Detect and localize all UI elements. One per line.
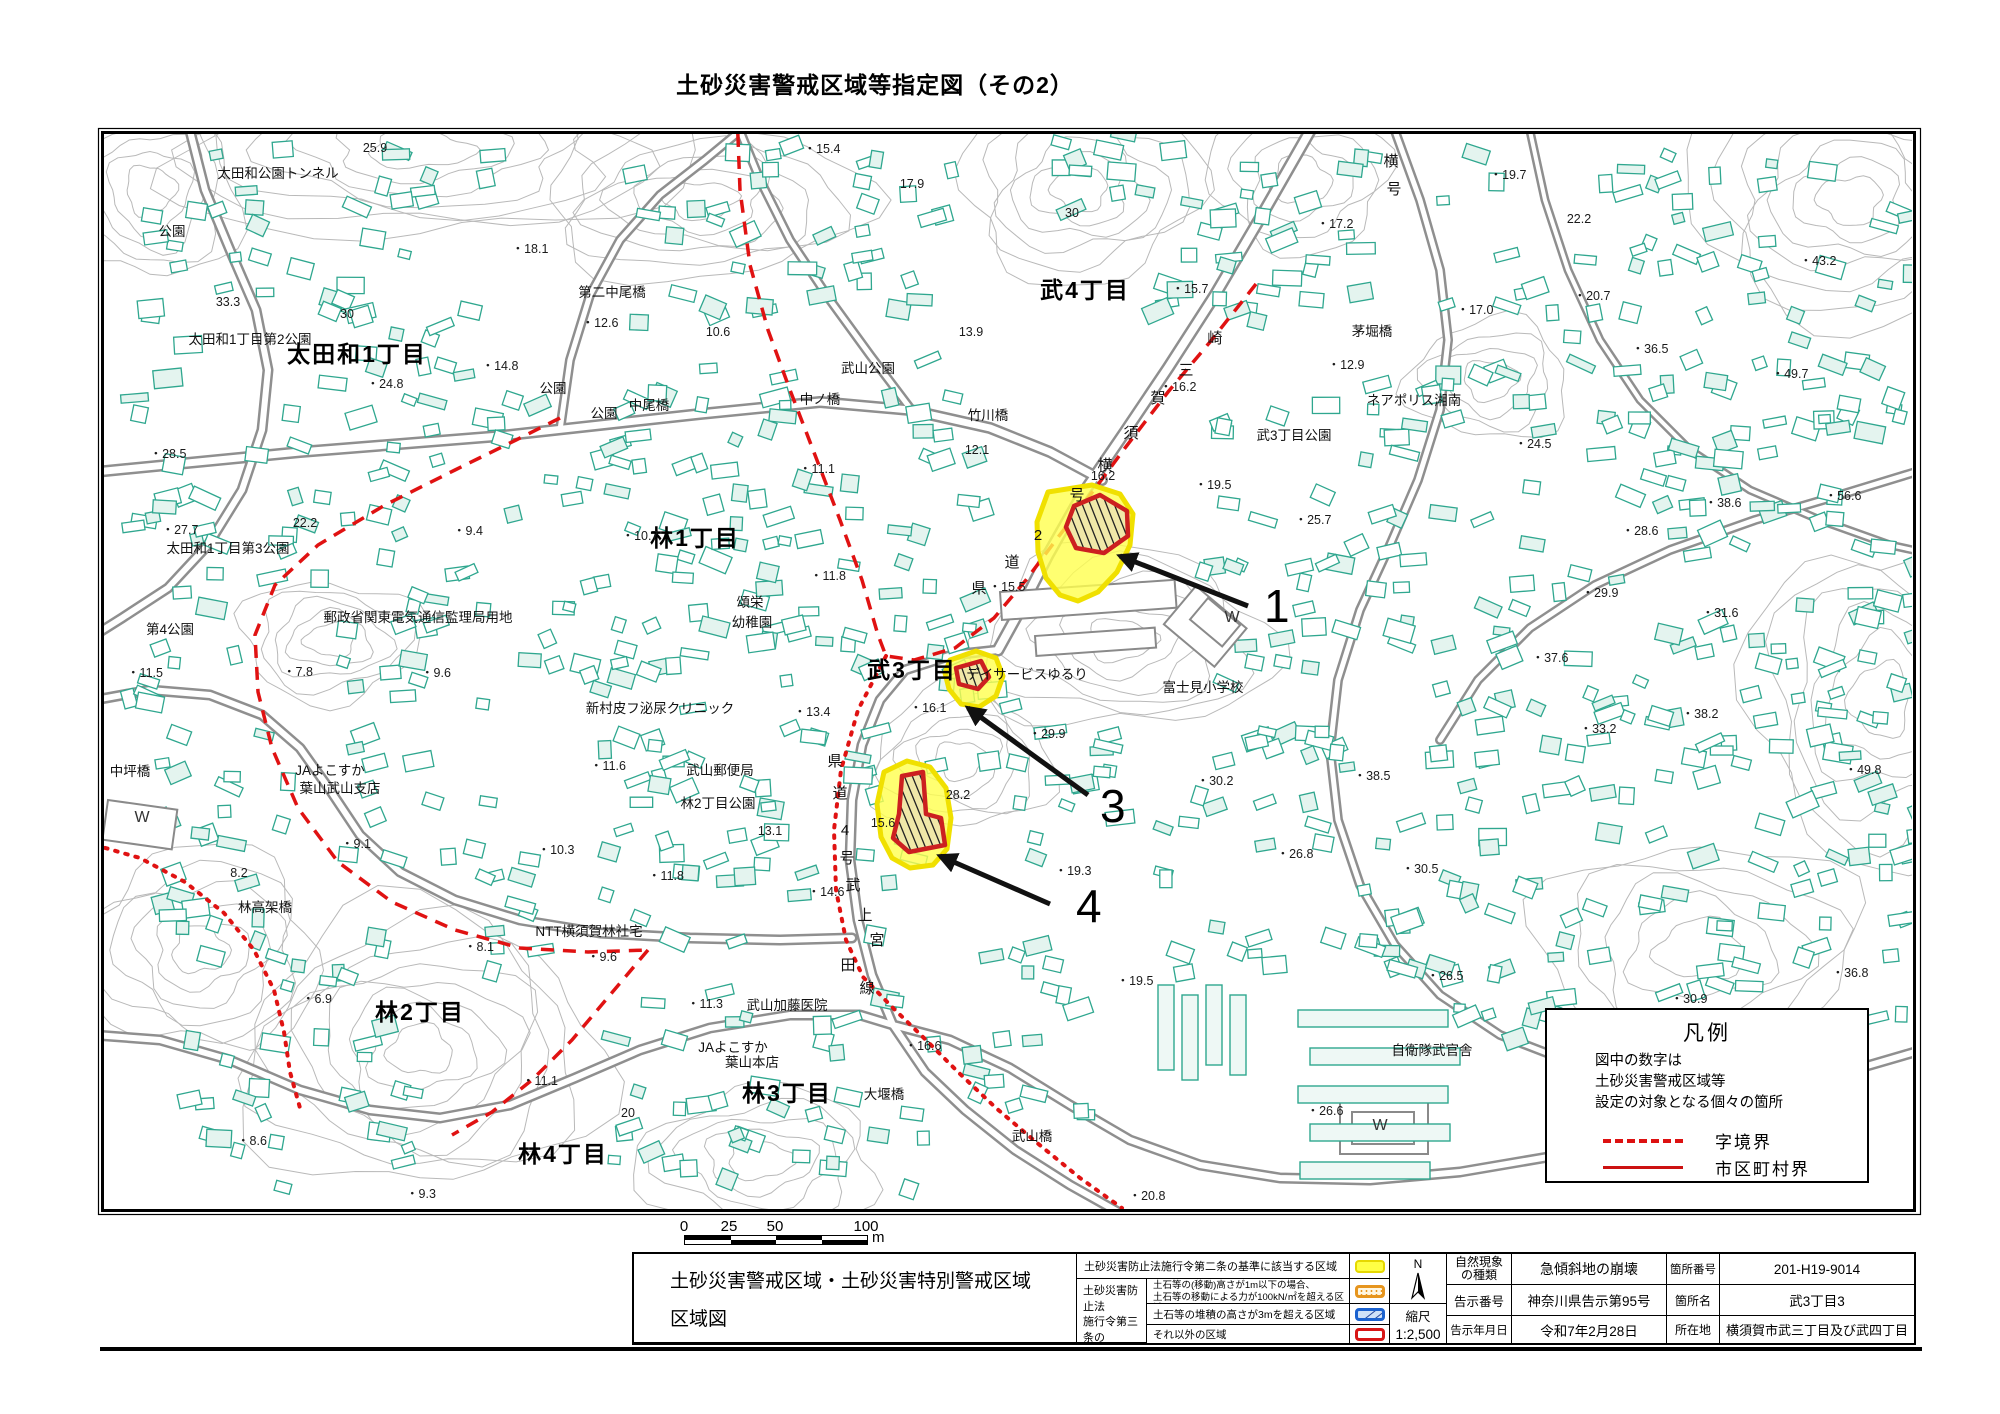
elevation-label: ・15.5 xyxy=(989,580,1026,594)
building xyxy=(245,200,264,215)
elevation-label: ・19.5 xyxy=(1195,478,1232,492)
building xyxy=(1556,932,1574,950)
building xyxy=(608,1155,620,1164)
elevation-label: ・17.0 xyxy=(1457,303,1494,317)
elevation-label: 30 xyxy=(1065,206,1079,220)
building xyxy=(170,260,188,273)
building xyxy=(1564,651,1592,666)
yellow-zone-swatch-icon xyxy=(1355,1260,1385,1273)
field-value-notice-date: 令和7年2月28日 xyxy=(1512,1316,1667,1343)
building xyxy=(561,491,583,506)
map-label: 4 xyxy=(841,822,849,839)
building xyxy=(1347,282,1373,302)
building xyxy=(155,758,170,769)
elevation-label: ・31.6 xyxy=(1702,606,1739,620)
building xyxy=(829,1044,845,1061)
building xyxy=(1609,574,1625,585)
building xyxy=(648,739,663,752)
building xyxy=(1837,395,1861,413)
elevation-label: ・7.8 xyxy=(283,665,313,679)
building xyxy=(191,827,210,840)
building xyxy=(1315,726,1329,737)
legend-row2-swatch-cell xyxy=(1350,1279,1390,1304)
field-value-location: 横須賀市武三丁目及び武四丁目 xyxy=(1720,1316,1914,1343)
map-label: JAよこすか xyxy=(698,1040,768,1055)
map-label: 横 xyxy=(1383,153,1398,170)
elevation-label: ・36.5 xyxy=(1632,342,1669,356)
building xyxy=(1437,815,1453,830)
building xyxy=(563,601,576,612)
map-label: 頌栄 xyxy=(737,595,765,610)
teal-structure xyxy=(1158,985,1174,1070)
building xyxy=(993,1031,1011,1048)
building xyxy=(881,875,897,891)
map-label: 2 xyxy=(1034,527,1042,544)
building xyxy=(440,848,456,865)
legend-item-label: 字境界 xyxy=(1715,1128,1772,1153)
building xyxy=(1384,429,1409,446)
map-label: 県 xyxy=(827,753,842,770)
elevation-label: 20 xyxy=(621,1106,635,1120)
map-label: NTT横須賀林社宅 xyxy=(535,924,642,939)
building xyxy=(1757,177,1777,193)
building xyxy=(1552,583,1566,602)
building xyxy=(1565,744,1585,762)
elevation-label: 22.2 xyxy=(1567,212,1591,226)
building xyxy=(1022,1034,1042,1046)
building xyxy=(357,1052,372,1061)
elevation-label: 17.9 xyxy=(900,177,924,191)
elevation-label: ・9.4 xyxy=(453,524,483,538)
map-label: 太田和公園トンネル xyxy=(217,166,338,181)
building xyxy=(1312,397,1339,413)
map-label: 道 xyxy=(832,785,847,802)
legend-item-label: 市区町村界 xyxy=(1715,1155,1810,1180)
building xyxy=(754,857,770,870)
map-label: 自衛隊武官舎 xyxy=(1392,1043,1473,1058)
building xyxy=(1629,412,1651,424)
building xyxy=(1357,884,1371,896)
building xyxy=(978,751,1001,771)
building xyxy=(184,1031,201,1051)
elevation-label: ・56.6 xyxy=(1825,489,1862,503)
building xyxy=(518,653,541,668)
elevation-label: ・10.3 xyxy=(538,843,575,857)
building xyxy=(1714,449,1744,469)
building xyxy=(957,494,980,507)
elevation-label: ・38.5 xyxy=(1354,769,1391,783)
building xyxy=(1510,575,1535,592)
building xyxy=(1160,141,1187,161)
north-label: N xyxy=(1414,1257,1423,1271)
building xyxy=(699,363,717,374)
building xyxy=(1339,762,1355,772)
elevation-label: ・25.7 xyxy=(1295,513,1332,527)
building xyxy=(1247,312,1267,330)
elevation-label: ・6.9 xyxy=(302,992,332,1006)
map-label: 林2丁目公園 xyxy=(680,796,755,811)
building xyxy=(913,424,933,438)
building xyxy=(1848,587,1873,599)
field-label-phenomenon: 自然現象 の種類 xyxy=(1447,1254,1512,1285)
building xyxy=(1069,165,1092,176)
elevation-label: ・11.1 xyxy=(522,1074,558,1088)
building xyxy=(1839,751,1861,760)
elevation-label: ・30.2 xyxy=(1197,774,1234,788)
building xyxy=(1245,654,1264,671)
map-label: 葉山本店 xyxy=(725,1055,779,1070)
building xyxy=(1720,625,1737,642)
map-label: 号 xyxy=(839,850,854,867)
building xyxy=(780,674,793,687)
building xyxy=(1769,739,1793,753)
building xyxy=(282,405,300,423)
building xyxy=(1299,792,1317,812)
building xyxy=(1892,409,1907,424)
building xyxy=(695,397,709,413)
building xyxy=(1672,194,1693,210)
zone-number-label-3: 3 xyxy=(1100,780,1126,832)
building xyxy=(1338,230,1354,240)
building xyxy=(1366,581,1387,598)
building xyxy=(711,462,739,479)
building xyxy=(632,459,647,474)
building xyxy=(479,796,497,808)
elevation-label: ・14.8 xyxy=(482,359,519,373)
building xyxy=(1546,305,1559,321)
building xyxy=(176,921,189,934)
field-value-phenomenon: 急傾斜地の崩壊 xyxy=(1512,1254,1667,1285)
teal-structure xyxy=(1298,1010,1448,1027)
building xyxy=(480,149,506,163)
building xyxy=(680,1160,697,1177)
building xyxy=(1254,208,1270,225)
elevation-label: ・38.6 xyxy=(1705,496,1742,510)
map-label: 幼稚園 xyxy=(732,615,773,630)
map-label: 三 xyxy=(1178,362,1193,379)
building xyxy=(291,959,306,973)
building xyxy=(1208,920,1225,934)
building xyxy=(387,442,401,453)
map-label: 公園 xyxy=(540,381,567,396)
building xyxy=(311,570,329,587)
building xyxy=(390,192,413,209)
elevation-label: ・12.6 xyxy=(582,316,619,330)
field-label-notice-no: 告示番号 xyxy=(1447,1285,1512,1316)
building xyxy=(1513,395,1529,409)
building xyxy=(1255,838,1276,852)
building xyxy=(846,507,863,520)
elevation-label: ・8.1 xyxy=(464,940,494,954)
building xyxy=(793,1150,811,1163)
building xyxy=(1110,185,1126,201)
district-label: 林1丁目 xyxy=(650,525,740,551)
building xyxy=(1586,304,1603,322)
elevation-label: ・9.6 xyxy=(421,666,451,680)
building xyxy=(1235,639,1257,652)
building xyxy=(672,572,693,583)
building xyxy=(765,149,781,161)
elevation-label: ・11.8 xyxy=(810,569,846,583)
teal-structure xyxy=(1230,995,1246,1075)
building xyxy=(1540,735,1562,755)
building xyxy=(1766,159,1778,169)
elevation-label: ・29.9 xyxy=(1582,586,1619,600)
legend-group-label: 土砂災害防止法 施行令第三条の 基準に該当する 区域 xyxy=(1077,1279,1147,1343)
elevation-label: ・9.1 xyxy=(341,837,371,851)
elevation-label: ・24.5 xyxy=(1515,437,1552,451)
building xyxy=(1523,480,1541,495)
building xyxy=(1883,949,1899,963)
scale-unit: m xyxy=(872,1229,885,1246)
building xyxy=(1437,196,1450,205)
elevation-label: ・10.7 xyxy=(622,529,659,543)
building xyxy=(1022,966,1034,979)
building xyxy=(962,1045,982,1064)
building xyxy=(1758,903,1785,921)
building xyxy=(1027,831,1043,846)
building xyxy=(1879,864,1892,880)
building xyxy=(1248,949,1263,959)
info-table: 土砂災害警戒区域・土砂災害特別警戒区域 区域図 土砂災害防止法施行令第二条の基準… xyxy=(632,1252,1916,1345)
map-label: 公園 xyxy=(159,224,186,239)
building xyxy=(131,405,149,424)
building xyxy=(746,298,773,315)
building xyxy=(229,252,241,262)
elevation-label: ・26.5 xyxy=(1427,969,1464,983)
building xyxy=(734,867,756,886)
building xyxy=(779,400,790,409)
map-label: 富士見小学校 xyxy=(1163,679,1244,695)
building xyxy=(1709,167,1721,184)
field-value-notice-no: 神奈川県告示第95号 xyxy=(1512,1285,1667,1316)
elevation-label: ・11.1 xyxy=(799,462,835,476)
building xyxy=(1748,292,1766,305)
elevation-label: ・49.8 xyxy=(1845,763,1882,777)
legend-row1-swatch-cell xyxy=(1350,1254,1390,1279)
elevation-label: ・30.9 xyxy=(1671,992,1708,1006)
zone-number-label-4: 4 xyxy=(1076,880,1102,932)
building xyxy=(137,298,164,318)
building xyxy=(1359,934,1378,948)
building xyxy=(732,484,749,502)
building xyxy=(598,741,611,759)
building xyxy=(1442,378,1454,391)
solid-red-line-icon xyxy=(1603,1166,1683,1169)
building xyxy=(682,865,699,881)
map-label: 武山郵便局 xyxy=(686,763,754,778)
building xyxy=(1599,174,1613,192)
map-label: 林高架橋 xyxy=(238,899,292,915)
legend-row4-swatch-cell xyxy=(1350,1325,1390,1343)
building xyxy=(1619,787,1635,804)
building xyxy=(380,665,401,680)
dashed-red-line-icon xyxy=(1603,1139,1683,1143)
building xyxy=(487,417,504,431)
building xyxy=(1587,446,1616,461)
building xyxy=(1819,917,1831,930)
building xyxy=(1869,834,1886,847)
building xyxy=(173,586,192,599)
building xyxy=(1274,655,1292,669)
elevation-label: 28.2 xyxy=(946,788,970,802)
map-label: 崎 xyxy=(1207,330,1222,347)
building xyxy=(1160,870,1172,888)
building xyxy=(813,1016,831,1035)
building xyxy=(984,1074,1004,1088)
legend-row1-label: 土砂災害防止法施行令第二条の基準に該当する区域 xyxy=(1077,1254,1350,1279)
building xyxy=(1654,450,1676,467)
building xyxy=(318,375,347,391)
building xyxy=(867,1127,889,1143)
building xyxy=(761,801,776,812)
building xyxy=(630,314,649,330)
elevation-label: ・43.2 xyxy=(1800,254,1837,268)
building xyxy=(314,490,332,504)
building xyxy=(1475,750,1500,767)
map-label: 賀 xyxy=(1150,390,1165,407)
map-label: 線 xyxy=(859,980,874,997)
map-label: 中ノ橋 xyxy=(800,392,841,407)
building xyxy=(1272,270,1301,286)
building xyxy=(1429,505,1457,522)
elevation-label: ・27.7 xyxy=(162,523,199,537)
map-label: 新村皮フ泌尿クリニック xyxy=(586,701,735,716)
building xyxy=(853,173,871,189)
field-label-location: 所在地 xyxy=(1667,1316,1720,1343)
map-legend-title: 凡例 xyxy=(1547,1017,1867,1047)
sheet-title-line1: 土砂災害警戒区域・土砂災害特別警戒区域 xyxy=(670,1266,1076,1293)
building xyxy=(1750,501,1774,511)
district-label: 林4丁目 xyxy=(518,1141,608,1167)
elevation-label: ・28.6 xyxy=(1622,524,1659,538)
elevation-label: ・19.5 xyxy=(1117,974,1154,988)
map-label: 横 xyxy=(1097,457,1112,474)
building xyxy=(1548,952,1564,962)
map-label: 武3丁目公園 xyxy=(1256,428,1331,443)
building xyxy=(272,141,293,158)
field-label-site-no: 箇所番号 xyxy=(1667,1254,1720,1285)
elevation-label: ・49.7 xyxy=(1772,367,1809,381)
sheet-title-line2: 区域図 xyxy=(670,1304,1076,1331)
elevation-label: 8.2 xyxy=(230,866,247,880)
map-label: 須 xyxy=(1123,425,1138,442)
elevation-label: 12.1 xyxy=(965,443,989,457)
building xyxy=(1796,598,1814,612)
building xyxy=(1210,209,1236,228)
building xyxy=(762,162,778,177)
building xyxy=(153,368,183,389)
building xyxy=(1013,796,1026,811)
map-label: JAよこすか xyxy=(295,763,365,778)
building xyxy=(917,1131,929,1145)
map-label: 武山加藤医院 xyxy=(747,998,828,1013)
building xyxy=(1240,189,1253,199)
building xyxy=(1873,712,1889,725)
building xyxy=(1819,415,1831,424)
building xyxy=(1786,658,1798,669)
building xyxy=(389,327,404,341)
building xyxy=(1704,372,1728,390)
district-label: 武4丁目 xyxy=(1040,277,1130,303)
building xyxy=(826,1156,839,1169)
map-label: 県 xyxy=(971,580,986,597)
elevation-label: ・8.6 xyxy=(237,1134,267,1148)
building xyxy=(625,429,651,442)
building xyxy=(1093,766,1110,778)
map-label: 中尾橋 xyxy=(629,398,670,413)
building xyxy=(1758,235,1775,247)
elevation-label: ・12.9 xyxy=(1328,358,1365,372)
elevation-label: 10.6 xyxy=(706,325,730,339)
map-label: 道 xyxy=(1004,554,1019,571)
building xyxy=(1347,243,1376,255)
building xyxy=(778,536,791,546)
map-label: 武山橋 xyxy=(1012,1129,1053,1144)
building xyxy=(168,657,181,669)
building xyxy=(1717,921,1733,931)
legend-row4-label: それ以外の区域 xyxy=(1147,1325,1350,1343)
building xyxy=(1056,986,1071,1005)
building xyxy=(1870,539,1896,554)
building xyxy=(888,525,912,536)
building xyxy=(1697,963,1725,979)
building xyxy=(220,1053,235,1068)
building xyxy=(319,976,336,987)
map-label: 公園 xyxy=(591,406,618,421)
teal-structure xyxy=(1300,1162,1430,1179)
building xyxy=(665,227,684,245)
building xyxy=(800,729,826,745)
building xyxy=(906,403,932,423)
elevation-label: ・11.3 xyxy=(687,997,723,1011)
building xyxy=(1748,633,1764,647)
building xyxy=(907,294,933,306)
map-legend-note: 図中の数字は 土砂災害警戒区域等 設定の対象となる個々の箇所 xyxy=(1595,1051,1867,1114)
elevation-label: ・29.9 xyxy=(1029,727,1066,741)
building xyxy=(1179,816,1200,828)
building xyxy=(423,423,440,437)
scale-tick: 0 xyxy=(680,1218,688,1235)
elevation-label: ・16.6 xyxy=(905,1039,942,1053)
building xyxy=(544,475,558,485)
scale-tick: 50 xyxy=(767,1218,784,1235)
building xyxy=(1588,947,1611,964)
building xyxy=(1574,254,1596,265)
field-value-site-no: 201-H19-9014 xyxy=(1720,1254,1914,1285)
building xyxy=(268,1134,284,1149)
map-label: 号 xyxy=(1069,487,1084,504)
field-value-site-name: 武3丁目3 xyxy=(1720,1285,1914,1316)
building xyxy=(580,577,597,594)
building xyxy=(121,393,149,403)
building xyxy=(1672,212,1685,224)
map-sheet: 土砂災害警戒区域等指定図（その2） 134太田和1丁目武4丁目林1丁目武3丁目林… xyxy=(0,0,2000,1414)
elevation-label: ・17.2 xyxy=(1317,217,1354,231)
map-label: 田 xyxy=(840,957,855,974)
legend-row3-swatch-cell xyxy=(1350,1304,1390,1325)
scale-bar: 0 25 50 100 m xyxy=(660,1218,910,1248)
scale-tick: 25 xyxy=(721,1218,738,1235)
building xyxy=(476,698,490,710)
building xyxy=(360,228,386,249)
building xyxy=(1808,161,1838,181)
building xyxy=(1262,956,1287,975)
building xyxy=(1771,644,1786,654)
building xyxy=(476,168,495,188)
building xyxy=(207,567,223,580)
legend-item-municipal-boundary: 市区町村界 xyxy=(1603,1155,1810,1180)
